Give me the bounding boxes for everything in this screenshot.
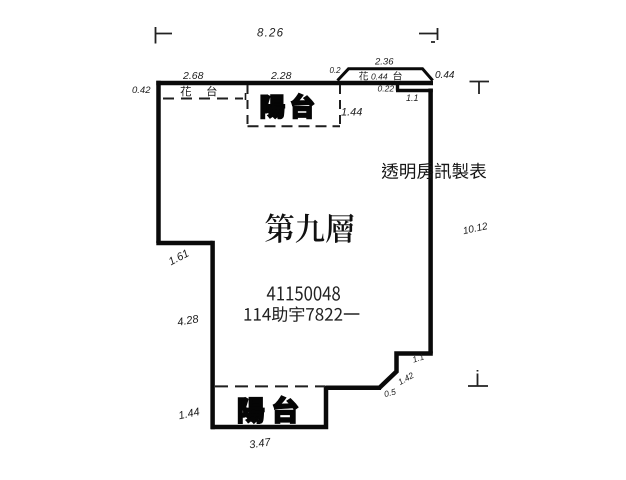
svg-text:0.2: 0.2 <box>330 66 342 75</box>
svg-text:8.26: 8.26 <box>257 28 284 40</box>
svg-text:0.44: 0.44 <box>435 70 455 81</box>
svg-text:2.36: 2.36 <box>374 57 394 68</box>
svg-text:1.1: 1.1 <box>406 93 419 103</box>
svg-text:2.28: 2.28 <box>270 70 292 82</box>
svg-text:2.68: 2.68 <box>182 70 204 82</box>
svg-text:0.22: 0.22 <box>378 84 395 94</box>
svg-text:0.42: 0.42 <box>132 85 151 96</box>
svg-text:0.44: 0.44 <box>371 72 388 82</box>
svg-text:1.44: 1.44 <box>341 107 362 119</box>
